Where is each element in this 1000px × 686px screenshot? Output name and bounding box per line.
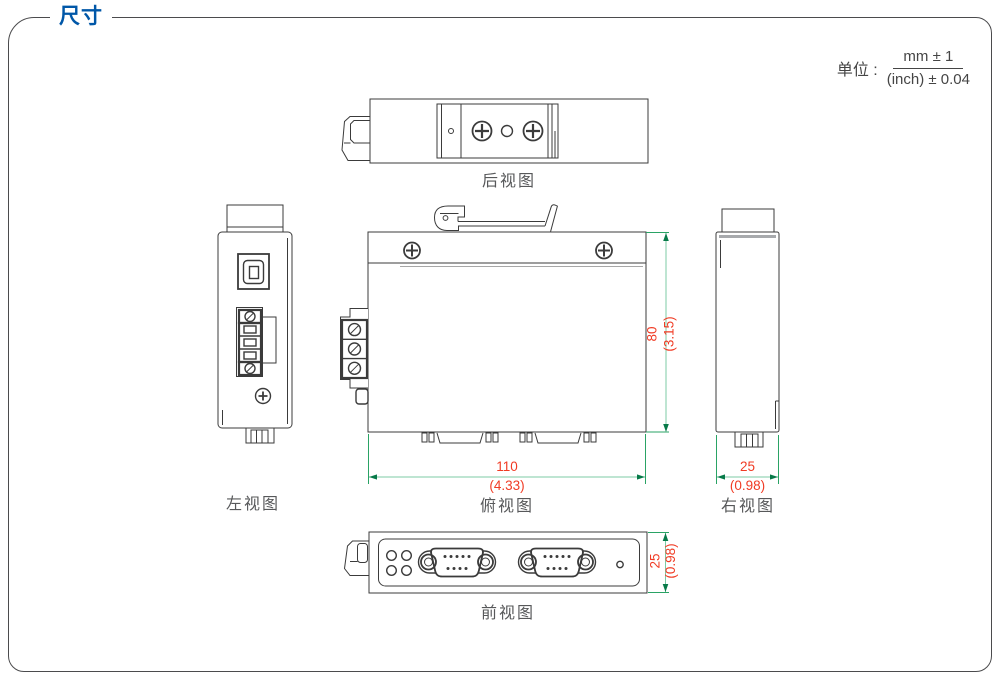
top-screw-left-icon	[404, 243, 420, 259]
unit-label: 单位 :	[837, 56, 878, 80]
view-right: 25 (0.98) 右视图	[716, 209, 779, 515]
unit-inch-tolerance: (inch) ± 0.04	[887, 69, 970, 88]
side-button	[356, 389, 368, 404]
front-din-clip-tab	[358, 544, 368, 563]
left-bottom-clip	[246, 428, 274, 443]
page: { "page": { "title": "尺寸" }, "unit": { "…	[0, 0, 1000, 686]
page-title: 尺寸	[50, 5, 112, 29]
din-rail-clip	[435, 205, 558, 232]
left-top-cap	[227, 205, 283, 232]
dim-height-inch: (3.15)	[662, 316, 677, 351]
view-left: 左视图	[218, 205, 292, 513]
view-rear: 后视图	[342, 99, 648, 190]
dim-width-inch: (4.33)	[489, 478, 524, 493]
dim-width: 110 (4.33)	[369, 434, 646, 493]
top-bottom-edge-connectors	[422, 433, 596, 443]
db9-connector-2	[519, 549, 596, 577]
right-body	[716, 232, 779, 432]
dim-height-mm: 80	[645, 326, 660, 341]
top-view-label: 俯视图	[480, 497, 534, 515]
view-top: 80 (3.15) 110 (4.33) 俯视图	[341, 205, 677, 515]
right-top-cap	[722, 209, 774, 232]
rear-screw-left-icon	[473, 122, 492, 141]
dim-front-height-mm: 25	[648, 553, 663, 568]
top-body	[368, 232, 646, 432]
rear-screw-right-icon	[524, 122, 543, 141]
terminal-block-top	[341, 309, 369, 389]
dim-depth-mm: 25	[740, 459, 755, 474]
dimension-drawing: 后视图	[0, 0, 1000, 686]
front-view-label: 前视图	[481, 604, 535, 622]
rear-view-label: 后视图	[482, 172, 536, 190]
dim-front-height: 25 (0.98)	[648, 533, 679, 593]
unit-mm-tolerance: mm ± 1	[893, 48, 963, 69]
db9-connector-1	[419, 549, 496, 577]
view-front: 25 (0.98) 前视图	[345, 532, 679, 622]
right-bottom-clip	[735, 432, 763, 447]
rear-din-clip-tab	[351, 121, 371, 144]
right-view-label: 右视图	[721, 497, 775, 515]
dim-depth-inch: (0.98)	[730, 478, 765, 493]
unit-fraction: mm ± 1 (inch) ± 0.04	[887, 48, 970, 88]
dim-width-mm: 110	[496, 459, 518, 474]
top-screw-right-icon	[596, 243, 612, 259]
left-body	[218, 232, 292, 428]
front-body	[369, 532, 647, 593]
dim-height: 80 (3.15)	[645, 233, 677, 433]
unit-notation: 单位 : mm ± 1 (inch) ± 0.04	[837, 48, 970, 88]
left-view-label: 左视图	[226, 495, 280, 513]
dim-front-height-inch: (0.98)	[663, 543, 678, 578]
rear-body	[370, 99, 648, 163]
